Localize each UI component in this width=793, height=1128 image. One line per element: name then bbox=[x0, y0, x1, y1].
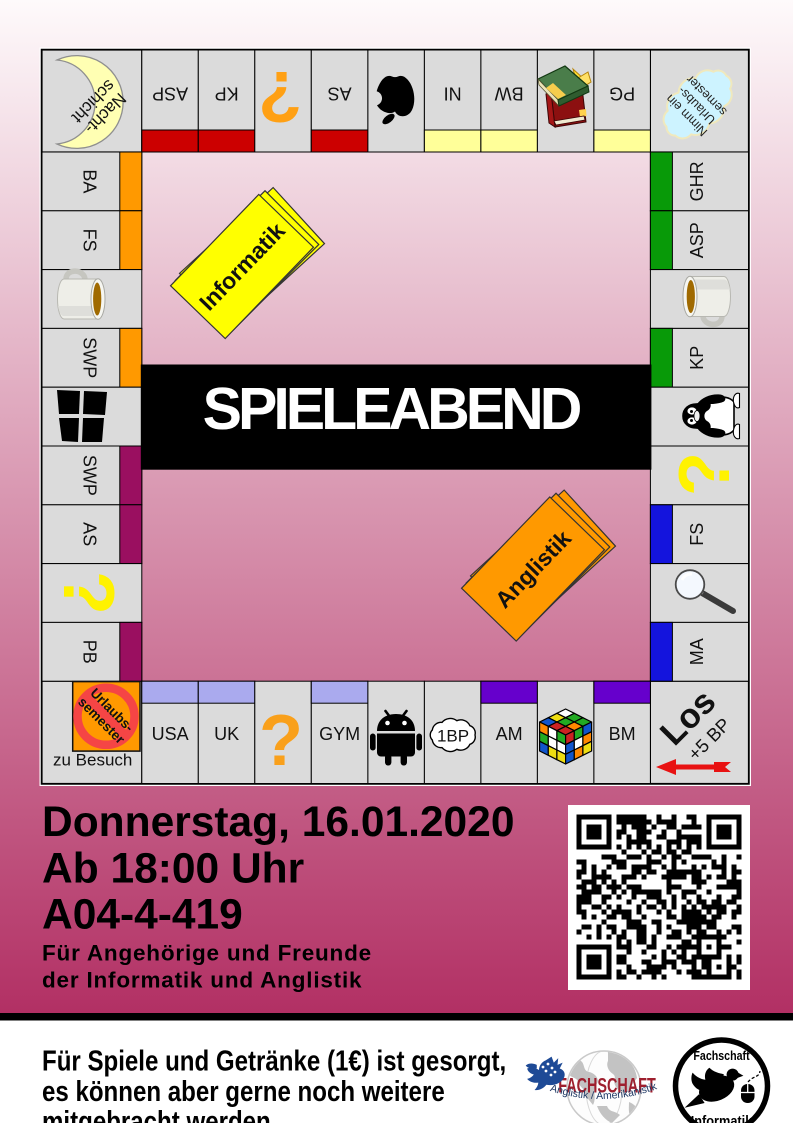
svg-text:BA: BA bbox=[80, 169, 100, 193]
svg-text:ASP: ASP bbox=[687, 222, 707, 258]
svg-text:BM: BM bbox=[609, 724, 636, 744]
svg-text:ASP: ASP bbox=[152, 84, 188, 104]
svg-text:?: ? bbox=[665, 452, 745, 496]
svg-text:KP: KP bbox=[687, 346, 707, 370]
svg-text:Für Angehörige und Freunde: Für Angehörige und Freunde bbox=[42, 941, 372, 966]
svg-text:FS: FS bbox=[687, 523, 707, 546]
svg-text:mitgebracht werden.: mitgebracht werden. bbox=[42, 1105, 277, 1123]
svg-text:A04-4-419: A04-4-419 bbox=[42, 892, 243, 939]
svg-text:zu Besuch: zu Besuch bbox=[53, 751, 132, 770]
svg-text:PB: PB bbox=[80, 640, 100, 664]
svg-text:1BP: 1BP bbox=[437, 727, 469, 746]
svg-text:NI: NI bbox=[444, 84, 462, 104]
svg-text:Informatik: Informatik bbox=[691, 1112, 753, 1123]
svg-text:SWP: SWP bbox=[80, 455, 100, 496]
svg-text:Fachschaft: Fachschaft bbox=[693, 1048, 749, 1063]
svg-text:Donnerstag, 16.01.2020: Donnerstag, 16.01.2020 bbox=[42, 799, 514, 846]
svg-text:AS: AS bbox=[328, 84, 352, 104]
svg-text:GHR: GHR bbox=[687, 161, 707, 201]
svg-text:GYM: GYM bbox=[319, 724, 360, 744]
svg-text:es können aber gerne noch weit: es können aber gerne noch weitere bbox=[42, 1075, 445, 1107]
svg-text:?: ? bbox=[259, 701, 303, 781]
svg-text:UK: UK bbox=[214, 724, 239, 744]
svg-text:KP: KP bbox=[215, 84, 239, 104]
svg-text:?: ? bbox=[258, 56, 302, 136]
svg-text:FS: FS bbox=[80, 229, 100, 252]
svg-text:SPIELEABEND: SPIELEABEND bbox=[203, 376, 581, 442]
svg-text:Ab 18:00 Uhr: Ab 18:00 Uhr bbox=[42, 845, 304, 892]
svg-text:MA: MA bbox=[687, 638, 707, 665]
svg-text:BW: BW bbox=[495, 84, 524, 104]
svg-text:AS: AS bbox=[80, 522, 100, 546]
svg-text:SWP: SWP bbox=[80, 337, 100, 378]
svg-text:AM: AM bbox=[496, 724, 523, 744]
svg-text:Für Spiele und Getränke (1€) i: Für Spiele und Getränke (1€) ist gesorgt… bbox=[42, 1045, 506, 1077]
svg-text:?: ? bbox=[48, 571, 128, 615]
svg-text:USA: USA bbox=[152, 724, 189, 744]
svg-text:PG: PG bbox=[609, 84, 635, 104]
svg-text:der Informatik und Anglistik: der Informatik und Anglistik bbox=[42, 968, 362, 993]
